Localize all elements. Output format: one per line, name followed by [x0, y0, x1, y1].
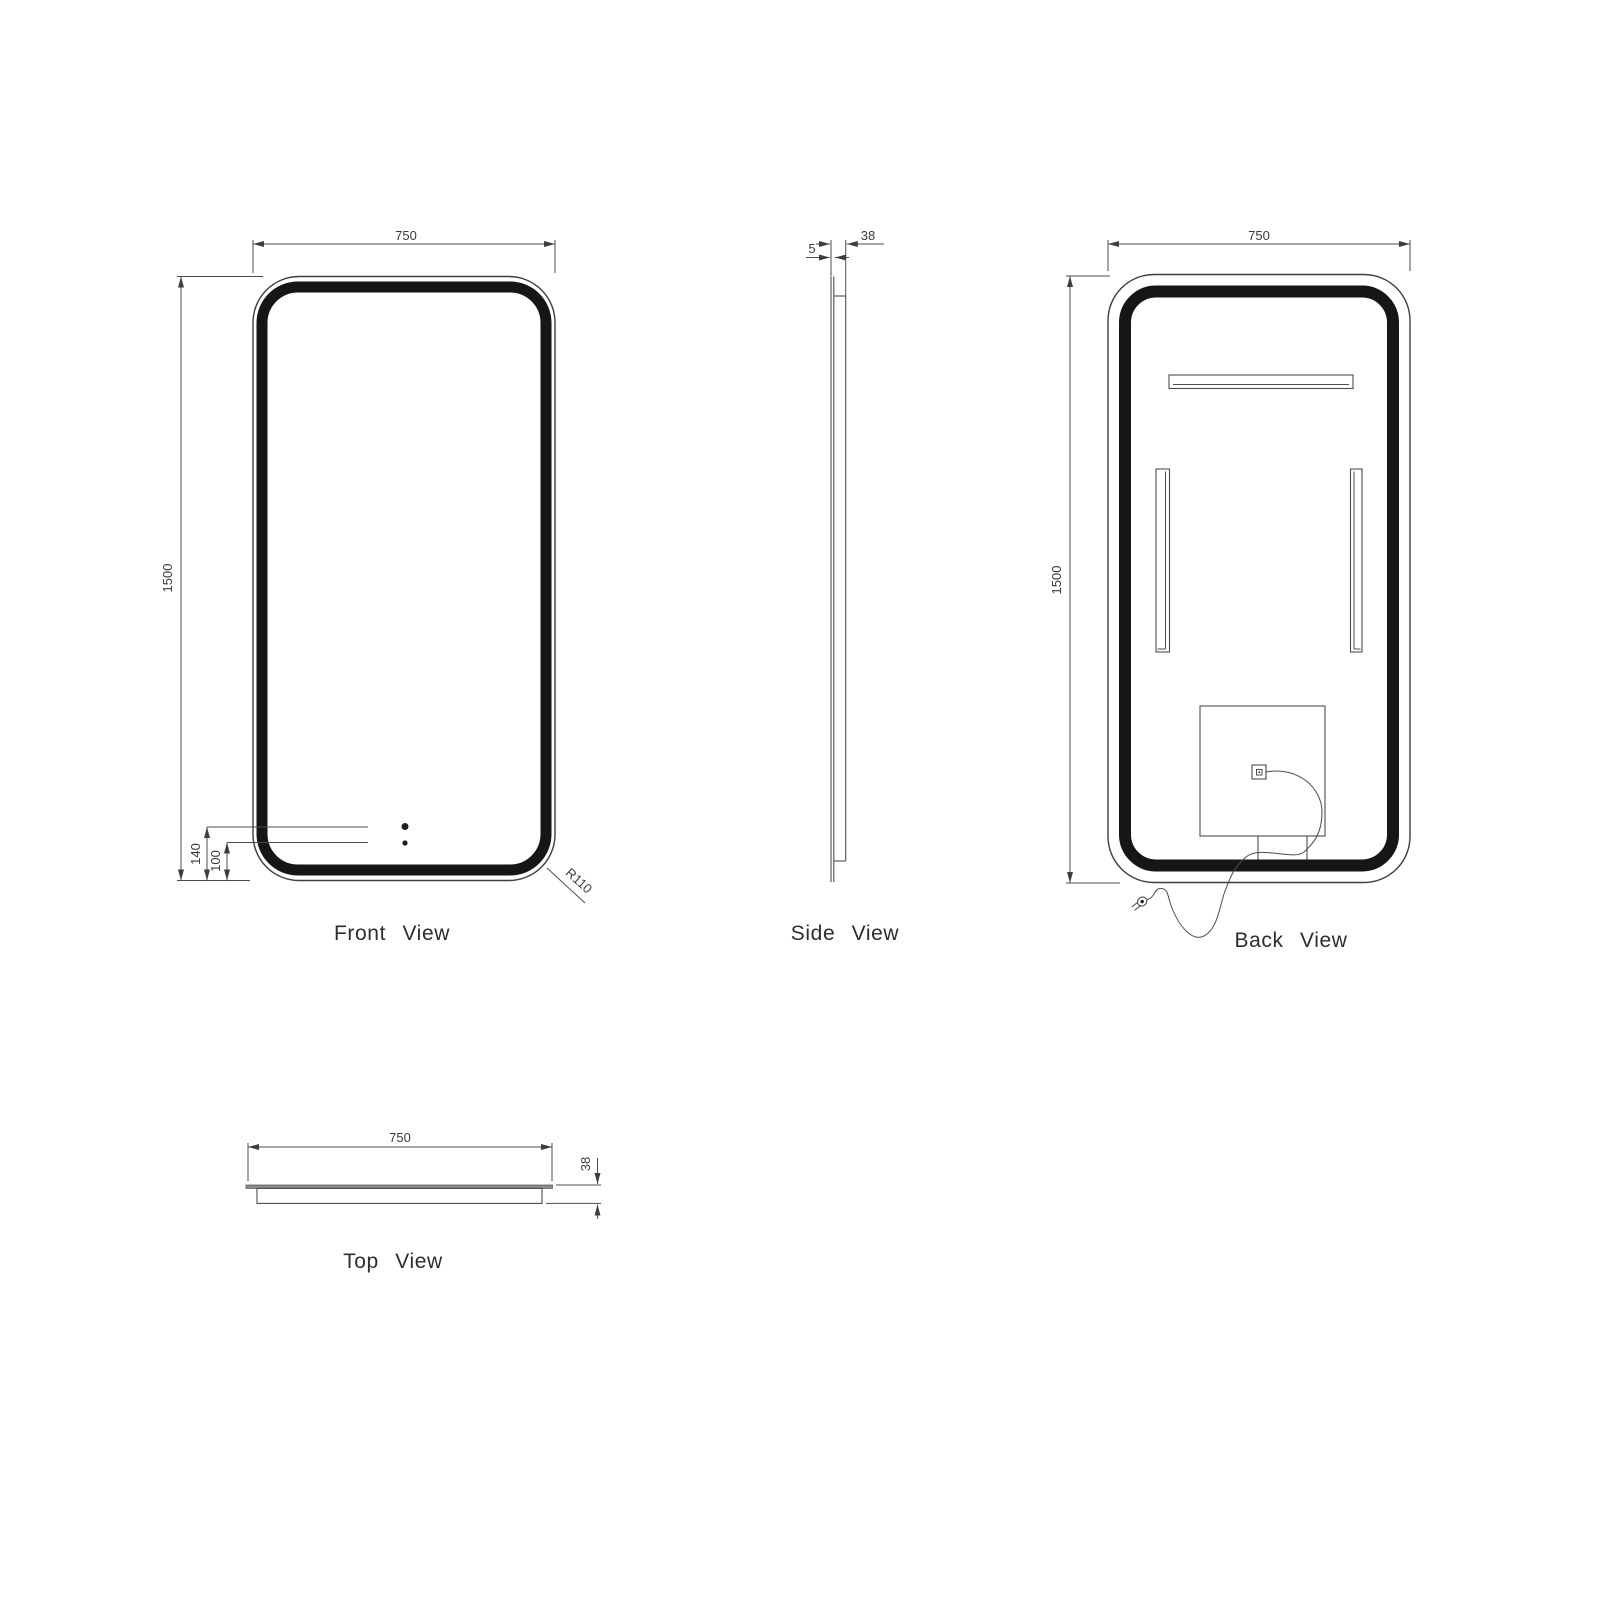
- front-view: 750 1500 140 100 R110 Front View: [160, 228, 595, 945]
- touch-sensor-dot-large: [402, 823, 409, 830]
- top-body-outline: [257, 1188, 542, 1203]
- back-mirror-outline: [1108, 275, 1410, 883]
- back-view: 750 1500 Back View: [1049, 228, 1410, 952]
- back-height-dim-label: 1500: [1049, 566, 1064, 595]
- hanging-rail-left: [1156, 469, 1170, 652]
- front-view-label: Front View: [334, 922, 450, 945]
- technical-drawing: 750 1500 140 100 R110 Front View 38: [0, 0, 1600, 1600]
- sensor-upper-dim-label: 140: [188, 843, 203, 865]
- top-depth-dim-label: 38: [578, 1157, 593, 1171]
- front-height-dim-label: 1500: [160, 564, 175, 593]
- sensor-lower-dim-label: 100: [208, 850, 223, 872]
- top-width-dim-label: 750: [389, 1130, 411, 1145]
- front-mirror-frame: [262, 287, 546, 870]
- top-view-label: Top View: [343, 1250, 443, 1273]
- side-depth-dim-label: 38: [861, 228, 875, 243]
- hanging-rail-right: [1351, 469, 1363, 652]
- front-mirror-outline: [253, 277, 555, 881]
- touch-sensor-dot-small: [402, 840, 407, 845]
- hanging-bracket: [1169, 375, 1353, 389]
- back-width-dim-label: 750: [1248, 228, 1270, 243]
- front-width-dim-label: 750: [395, 228, 417, 243]
- power-connector-pin: [1258, 771, 1260, 773]
- side-view: 38 5 Side View: [791, 228, 900, 945]
- side-glass-dim-label: 5: [808, 241, 815, 256]
- power-plug-icon: [1130, 895, 1148, 912]
- radius-label: R110: [563, 865, 595, 896]
- back-view-label: Back View: [1234, 929, 1347, 952]
- drawing-sheet: 750 1500 140 100 R110 Front View 38: [0, 0, 1600, 1600]
- top-view: 750 38 Top View: [246, 1130, 601, 1273]
- side-view-label: Side View: [791, 922, 900, 945]
- power-cable: [1147, 771, 1322, 937]
